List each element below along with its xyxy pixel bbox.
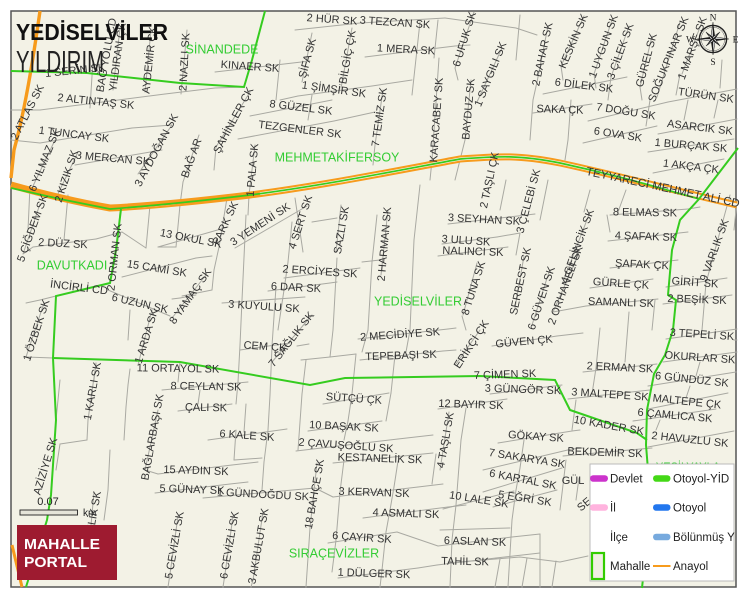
svg-text:6 ASLAN SK: 6 ASLAN SK xyxy=(444,535,507,549)
svg-text:4 ASMALI SK: 4 ASMALI SK xyxy=(372,507,440,521)
svg-text:BEKDEMİR SK: BEKDEMİR SK xyxy=(567,445,643,461)
svg-text:SIRAÇEVİZLER: SIRAÇEVİZLER xyxy=(289,547,379,561)
svg-text:15 AYDIN SK: 15 AYDIN SK xyxy=(163,464,229,478)
svg-text:km: km xyxy=(83,508,96,519)
svg-text:TEPEBAŞI SK: TEPEBAŞI SK xyxy=(365,349,438,364)
svg-text:1 DÜLGER SK: 1 DÜLGER SK xyxy=(337,567,411,582)
svg-text:Bölünmüş Y: Bölünmüş Y xyxy=(673,532,735,544)
svg-text:W: W xyxy=(686,36,695,46)
svg-text:Mahalle: Mahalle xyxy=(610,561,650,573)
svg-text:YEDİSELVİLER: YEDİSELVİLER xyxy=(16,19,168,45)
svg-text:SAKA ÇK: SAKA ÇK xyxy=(536,103,584,117)
svg-text:MEHMETAKİFERSOY: MEHMETAKİFERSOY xyxy=(275,151,400,165)
svg-text:Otoyol: Otoyol xyxy=(673,503,706,515)
svg-text:3 KERVAN SK: 3 KERVAN SK xyxy=(338,486,410,500)
svg-text:TAHİL SK: TAHİL SK xyxy=(441,555,490,569)
svg-text:E: E xyxy=(733,36,739,46)
svg-text:MAHALLE: MAHALLE xyxy=(24,536,100,553)
svg-text:4 ŞAFAK SK: 4 ŞAFAK SK xyxy=(615,230,678,244)
svg-text:NALINCI SK: NALINCI SK xyxy=(442,245,504,259)
svg-text:İlçe: İlçe xyxy=(610,531,628,544)
svg-text:Anayol: Anayol xyxy=(673,561,708,573)
svg-text:SAMANLI SK: SAMANLI SK xyxy=(588,296,655,310)
svg-text:7 ÇİMEN SK: 7 ÇİMEN SK xyxy=(474,367,537,382)
svg-text:8 ELMAS SK: 8 ELMAS SK xyxy=(613,206,678,219)
svg-text:ÇALI SK: ÇALI SK xyxy=(185,402,228,415)
svg-text:0.07: 0.07 xyxy=(37,496,58,508)
svg-text:İl: İl xyxy=(610,502,616,515)
svg-text:PORTAL: PORTAL xyxy=(24,554,87,571)
svg-text:YILDIRIM: YILDIRIM xyxy=(16,44,104,79)
svg-text:2 BEŞİK SK: 2 BEŞİK SK xyxy=(667,292,727,307)
svg-text:Devlet: Devlet xyxy=(610,474,643,486)
svg-text:YEDİSELVİLER: YEDİSELVİLER xyxy=(374,295,462,309)
svg-text:5 GÜNAY SK: 5 GÜNAY SK xyxy=(159,483,225,497)
svg-text:8 CEYLAN SK: 8 CEYLAN SK xyxy=(170,380,242,393)
svg-text:S: S xyxy=(710,58,715,68)
svg-text:11 ORTAYOL SK: 11 ORTAYOL SK xyxy=(137,362,220,375)
svg-text:DAVUTKADI: DAVUTKADI xyxy=(37,259,108,273)
svg-text:GÜL: GÜL xyxy=(562,475,585,487)
svg-text:SİNANDEDE: SİNANDEDE xyxy=(186,43,259,57)
svg-text:12 BAYIR SK: 12 BAYIR SK xyxy=(438,398,504,412)
svg-text:N: N xyxy=(710,14,717,24)
svg-text:Otoyol-YİD: Otoyol-YİD xyxy=(673,473,729,486)
